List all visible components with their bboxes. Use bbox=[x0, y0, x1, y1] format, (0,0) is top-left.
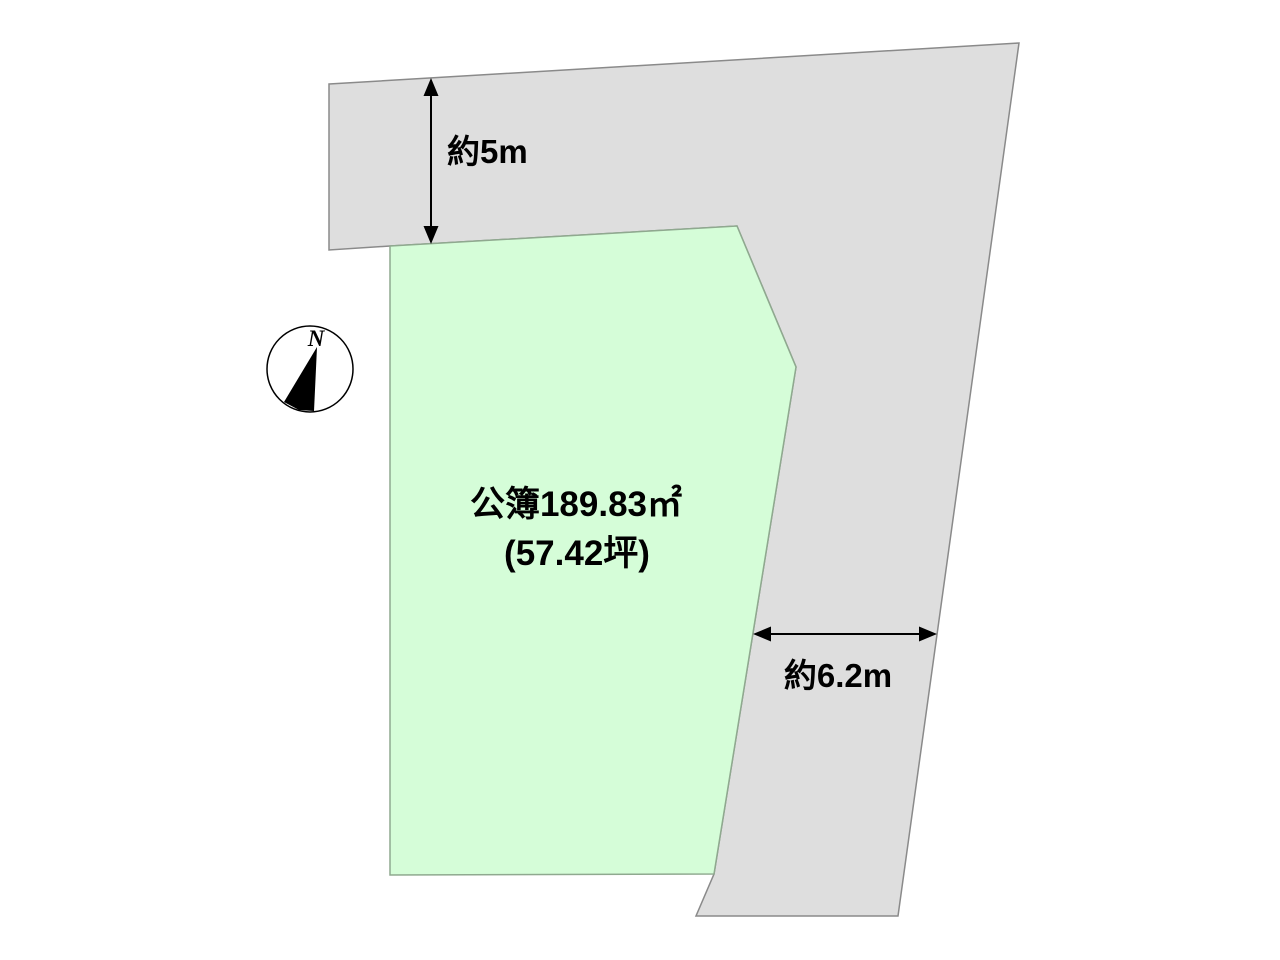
compass: N bbox=[267, 326, 353, 412]
diagram-canvas: 約5m 約6.2m 公簿189.83㎡ (57.42坪) N bbox=[0, 0, 1280, 960]
dimension-label-top: 約5m bbox=[447, 133, 528, 170]
land-plot-diagram: 約5m 約6.2m 公簿189.83㎡ (57.42坪) N bbox=[0, 0, 1280, 960]
plot-tsubo-label: (57.42坪) bbox=[504, 534, 650, 573]
north-label: N bbox=[307, 326, 326, 351]
dimension-label-right: 約6.2m bbox=[784, 657, 892, 694]
plot-area-label: 公簿189.83㎡ bbox=[470, 484, 682, 524]
